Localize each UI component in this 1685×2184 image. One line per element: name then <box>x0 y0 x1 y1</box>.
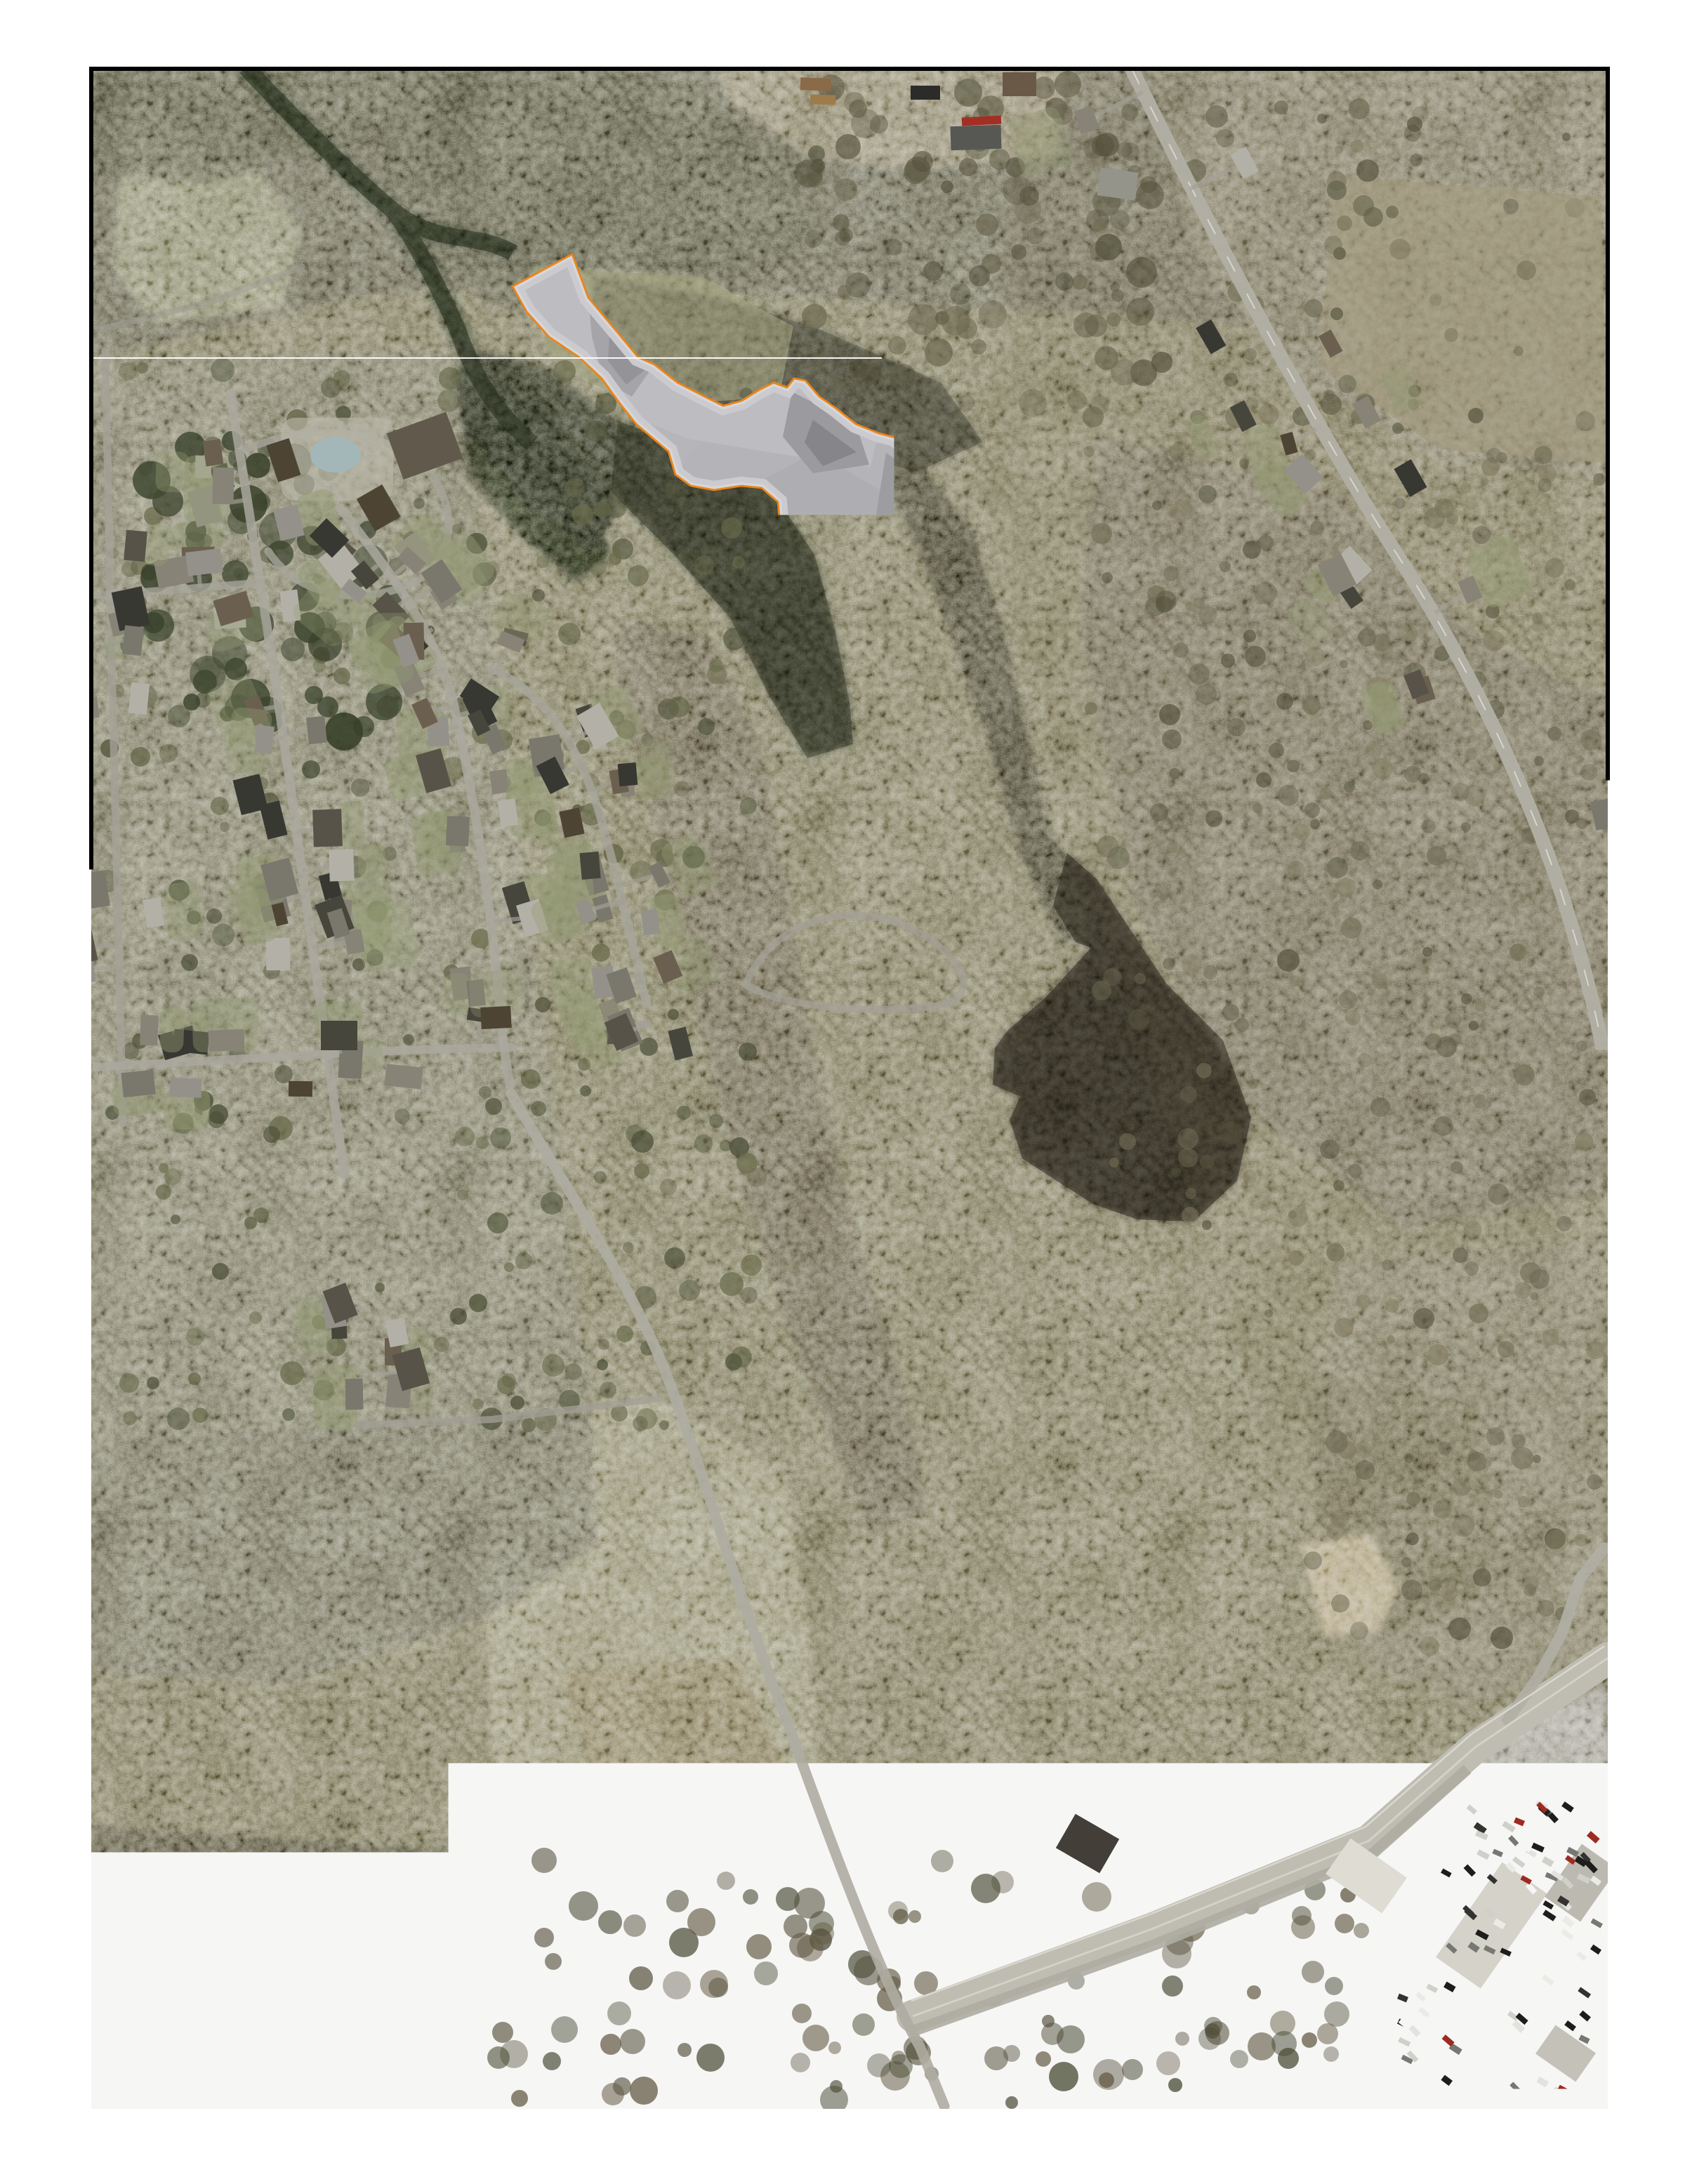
svg-text:2.667 - 3.333: 2.667 - 3.333 <box>222 1817 416 1854</box>
svg-text:Edge type: Edge type <box>126 1426 294 1465</box>
svg-text:2 - 2.667: 2 - 2.667 <box>222 1874 352 1912</box>
svg-text:0 - 0.667: 0 - 0.667 <box>222 2047 352 2084</box>
svg-text:Soft Edge: Soft Edge <box>222 1472 366 1509</box>
svg-text:1.333 - 2: 1.333 - 2 <box>222 1932 352 1969</box>
svg-text:0.667 - 1.333: 0.667 - 1.333 <box>222 1990 416 2027</box>
svg-text:5.333 - 6: 5.333 - 6 <box>222 1587 352 1624</box>
svg-text:4 - 4.667: 4 - 4.667 <box>222 1702 352 1739</box>
svg-text:Legend: Legend <box>126 1295 271 1340</box>
svg-text:3.333 - 4: 3.333 - 4 <box>222 1759 352 1796</box>
svg-text:UpperLakeTinDepth: UpperLakeTinDepth <box>126 1368 473 1408</box>
svg-text:4.667 - 5.333: 4.667 - 5.333 <box>222 1644 416 1681</box>
svg-text:Elevation: Elevation <box>126 1533 295 1575</box>
